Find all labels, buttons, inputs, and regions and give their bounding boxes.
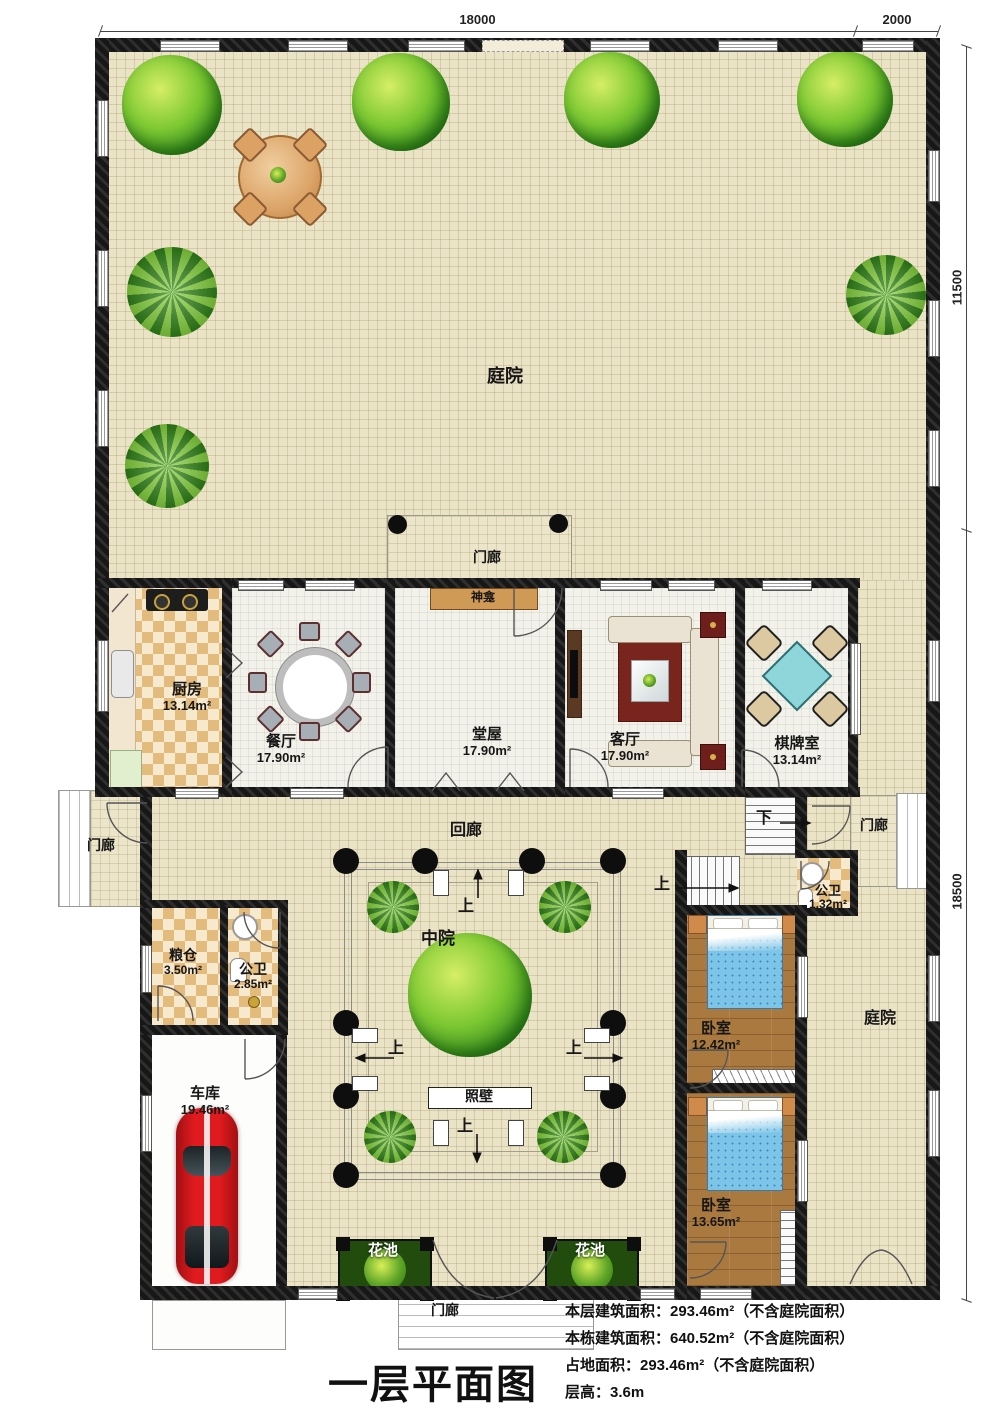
pillow [748, 918, 778, 929]
wall-bedroom-divider [675, 1083, 807, 1093]
burner [154, 594, 170, 610]
tv [570, 650, 578, 698]
window [928, 955, 940, 1022]
note-building-area: 本栋建筑面积：640.52m²（不含庭院面积） [565, 1327, 995, 1348]
stove [146, 589, 208, 611]
room-kitchen-area: 13.14m² [147, 699, 227, 713]
room-dining-name: 餐厅 [241, 734, 321, 751]
zone-screen-wall: 照壁 [428, 1089, 530, 1104]
colonnade-rail-bottom [347, 1172, 615, 1180]
window [640, 1288, 675, 1300]
tree [564, 52, 660, 148]
room-hall-name: 堂屋 [447, 727, 527, 744]
sofa [608, 616, 692, 643]
palm-tree [539, 881, 591, 933]
floor-drain [248, 996, 260, 1008]
wall-bottom [140, 1286, 940, 1300]
side-table [700, 612, 726, 638]
wall-band-top [95, 578, 860, 588]
note-floor-area: 本层建筑面积：293.46m²（不含庭院面积） [565, 1300, 995, 1321]
wall-grain-top [140, 900, 288, 908]
colonnade-rail-top [347, 862, 615, 870]
floor-plan: 庭院 庭院 回廊 中院 照壁 神龛 门廊 门廊 门廊 门廊 花池 花池 厨房 1… [0, 0, 1000, 1414]
note-storey-height: 层高：3.6m [565, 1381, 995, 1402]
dim-top-right: 2000 [872, 12, 922, 27]
step-post [508, 870, 524, 896]
zone-flower-bed-right: 花池 [555, 1243, 625, 1260]
glyph-up: 上 [650, 876, 674, 894]
step-post [352, 1028, 378, 1043]
wall-bath-right-top [795, 850, 857, 858]
room-bedroom2-area: 13.65m² [676, 1215, 756, 1229]
side-table [700, 744, 726, 770]
burner [182, 594, 198, 610]
tree [797, 51, 893, 147]
car [176, 1108, 238, 1284]
window [160, 40, 220, 52]
dim-right-lower: 18500 [950, 857, 965, 927]
fridge [110, 750, 142, 788]
note-footprint-area: 占地面积：293.46m²（不含庭院面积） [565, 1354, 995, 1375]
window [97, 250, 109, 307]
pillow [713, 1100, 743, 1111]
nightstand [688, 1097, 707, 1116]
window [928, 150, 940, 202]
window [288, 40, 348, 52]
page-title: 一层平面图 [328, 1363, 538, 1407]
staircase-lower-flight [682, 856, 740, 912]
step-post [508, 1120, 524, 1146]
room-garage-area: 19.46m² [165, 1103, 245, 1117]
table-plant [643, 674, 656, 687]
bed [707, 1097, 783, 1191]
pillow [713, 918, 743, 929]
wall-left-lower [140, 797, 152, 1300]
window [928, 640, 940, 702]
window [97, 640, 109, 712]
room-living-name: 客厅 [585, 732, 665, 749]
dim-right-upper: 11500 [950, 253, 965, 323]
wall-bedroom-left [675, 905, 687, 1300]
dim-line-right [966, 46, 967, 1300]
middle-court-tree [408, 933, 532, 1057]
window [928, 1090, 940, 1157]
window [175, 788, 219, 799]
wall-stair-left [675, 850, 687, 905]
column [600, 848, 626, 874]
pillow [748, 1100, 778, 1111]
column [333, 848, 359, 874]
gate-opening [482, 40, 564, 52]
dim-tick [936, 25, 941, 37]
wall-living-chess [735, 578, 745, 797]
column [333, 1162, 359, 1188]
zone-shrine: 神龛 [430, 591, 536, 604]
column [600, 1162, 626, 1188]
notes-block: 本层建筑面积：293.46m²（不含庭院面积） 本栋建筑面积：640.52m²（… [565, 1300, 995, 1408]
palm-tree [537, 1111, 589, 1163]
title-block: 一层平面图 1:100 [328, 1352, 563, 1414]
room-garage-name: 车库 [165, 1086, 245, 1103]
window [97, 100, 109, 157]
room-bedroom1-area: 12.42m² [676, 1038, 756, 1052]
window [600, 580, 652, 591]
blanket-fold [708, 929, 782, 951]
zone-porch-right: 门廊 [843, 818, 905, 833]
palm-tree [367, 881, 419, 933]
room-kitchen-name: 厨房 [147, 682, 227, 699]
room-grain-area: 3.50m² [146, 964, 220, 977]
room-bedroom1-name: 卧室 [676, 1021, 756, 1038]
glyph-up: 上 [453, 1118, 477, 1136]
step-post [433, 1120, 449, 1146]
wall-stair [795, 797, 807, 850]
racing-stripe [204, 1108, 210, 1284]
palm-tree [125, 424, 209, 508]
dim-top-width: 18000 [435, 12, 520, 27]
bed [707, 915, 783, 1009]
window [718, 40, 778, 52]
nightstand [688, 915, 707, 934]
window [590, 40, 650, 52]
window [238, 580, 284, 591]
palm-tree [364, 1111, 416, 1163]
wall-garage-right [276, 1035, 287, 1286]
zone-flower-bed-left: 花池 [348, 1243, 418, 1260]
garage-apron [152, 1300, 286, 1350]
room-bedroom2-name: 卧室 [676, 1198, 756, 1215]
dining-chair [248, 672, 267, 693]
zone-porch-left: 门廊 [70, 838, 132, 853]
room-hall-area: 17.90m² [447, 744, 527, 758]
wall-dining-hall [385, 578, 395, 797]
blanket-fold [708, 1111, 782, 1133]
bed-post [420, 1237, 434, 1251]
window [298, 1288, 338, 1300]
wall-grain-bottom [140, 1025, 288, 1035]
step-post [584, 1028, 610, 1043]
window [762, 580, 812, 591]
room-bath-small-area: 2.85m² [223, 978, 283, 991]
window [928, 430, 940, 487]
courtyard-top-floor [107, 50, 926, 580]
zone-porch-top: 门廊 [447, 550, 527, 565]
glyph-up: 上 [562, 1040, 586, 1058]
step-post [584, 1076, 610, 1091]
dining-chair [352, 672, 371, 693]
window [862, 40, 914, 52]
sofa [690, 628, 719, 756]
room-chess-name: 棋牌室 [752, 736, 842, 753]
window [305, 580, 355, 591]
wall-hall-living [555, 578, 565, 797]
step-post [433, 870, 449, 896]
washbasin [232, 914, 258, 940]
kitchen-sink [111, 650, 134, 698]
window [850, 643, 861, 735]
window [797, 956, 808, 1018]
zone-porch-bottom: 门廊 [414, 1303, 476, 1318]
room-grain-name: 粮仓 [146, 948, 220, 963]
window [612, 788, 664, 799]
window [408, 40, 465, 52]
room-chess-area: 13.14m² [752, 753, 842, 767]
window [141, 1095, 152, 1152]
wall-bedroom-top [675, 905, 807, 915]
title-scale: 1:100 [336, 1410, 403, 1414]
glyph-up: 上 [384, 1040, 408, 1058]
dim-line-top [100, 31, 938, 32]
room-bath-right-area: 1.32m² [800, 898, 856, 911]
window [97, 390, 109, 447]
step-post [352, 1076, 378, 1091]
palm-tree [127, 247, 217, 337]
palm-tree [846, 255, 926, 335]
window [290, 788, 344, 799]
porch-column [549, 514, 568, 533]
zone-middle-court: 中院 [398, 930, 478, 949]
room-living-area: 17.90m² [585, 749, 665, 763]
window [668, 580, 715, 591]
room-dining-area: 17.90m² [241, 751, 321, 765]
glyph-down: 下 [752, 810, 776, 828]
bed-post [627, 1237, 641, 1251]
tree [352, 53, 450, 151]
zone-courtyard-top: 庭院 [465, 367, 545, 387]
room-bath-small-name: 公卫 [223, 962, 283, 977]
tea-table-plant [270, 167, 286, 183]
tree [122, 55, 222, 155]
zone-corridor: 回廊 [426, 822, 506, 840]
glyph-up: 上 [454, 898, 478, 916]
window [700, 1288, 752, 1300]
window [797, 1140, 808, 1202]
window [928, 300, 940, 357]
porch-column [388, 515, 407, 534]
dining-chair [299, 622, 320, 641]
zone-courtyard-right: 庭院 [845, 1010, 915, 1028]
